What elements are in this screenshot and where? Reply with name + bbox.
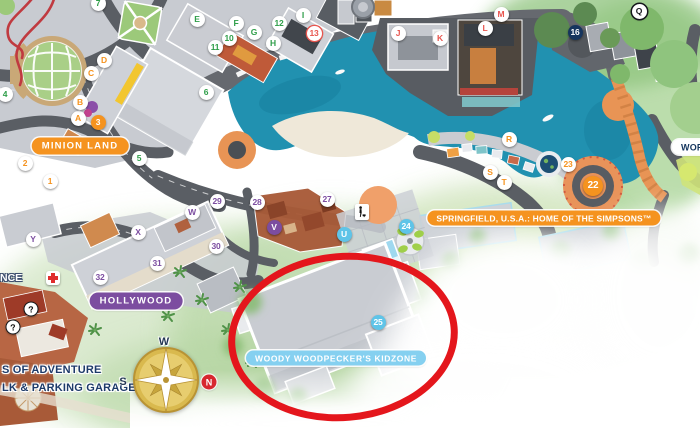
central-park-ring: [218, 131, 256, 169]
map-artwork: [0, 0, 700, 428]
theme-park-map: MINION LANDSPRINGFIELD, U.S.A.: HOME OF …: [0, 0, 700, 428]
music-plaza-lawn: [118, 1, 162, 45]
